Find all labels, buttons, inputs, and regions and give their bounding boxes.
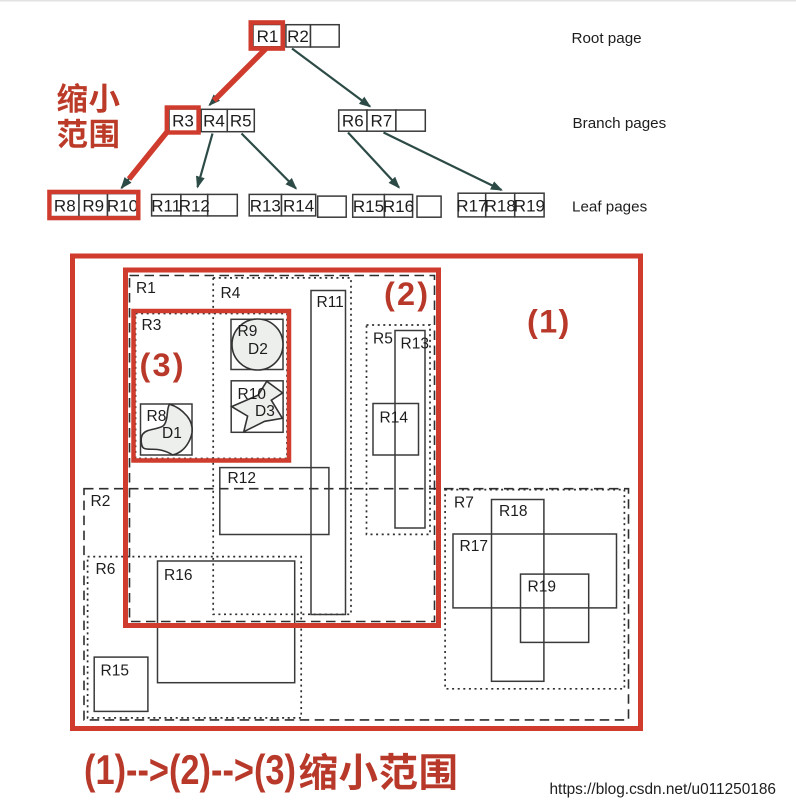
- svg-text:R1: R1: [136, 280, 156, 297]
- svg-text:R4: R4: [221, 285, 241, 302]
- svg-text:R17: R17: [456, 197, 487, 216]
- svg-text:R3: R3: [142, 317, 162, 334]
- svg-text:(3): (3): [140, 347, 186, 383]
- svg-text:D3: D3: [255, 403, 275, 420]
- svg-text:R14: R14: [380, 410, 409, 427]
- svg-text:R12: R12: [228, 470, 256, 487]
- svg-text:D1: D1: [162, 425, 182, 442]
- svg-text:R8: R8: [147, 408, 167, 425]
- svg-text:R18: R18: [499, 503, 527, 520]
- svg-text:R4: R4: [203, 112, 225, 131]
- svg-text:R6: R6: [96, 561, 116, 578]
- svg-text:R19: R19: [528, 579, 556, 596]
- svg-text:R14: R14: [283, 197, 314, 216]
- svg-text:R15: R15: [353, 197, 384, 216]
- svg-text:R9: R9: [82, 197, 104, 216]
- svg-text:R7: R7: [454, 495, 474, 512]
- svg-text:(1): (1): [527, 304, 571, 340]
- svg-text:R7: R7: [371, 112, 393, 131]
- svg-text:R19: R19: [514, 197, 545, 216]
- svg-text:R15: R15: [101, 663, 129, 680]
- svg-text:R6: R6: [342, 112, 364, 131]
- svg-text:Root page: Root page: [572, 30, 642, 47]
- svg-text:R18: R18: [485, 197, 516, 216]
- svg-text:D2: D2: [248, 341, 268, 358]
- svg-text:R5: R5: [230, 112, 252, 131]
- svg-text:R17: R17: [460, 538, 488, 555]
- svg-text:R8: R8: [54, 197, 76, 216]
- svg-text:R1: R1: [257, 27, 279, 46]
- svg-text:R2: R2: [287, 27, 309, 46]
- svg-text:R11: R11: [151, 197, 181, 216]
- svg-text:R11: R11: [317, 294, 344, 311]
- svg-text:R9: R9: [238, 323, 258, 340]
- svg-text:(1)-->(2)-->(3): (1)-->(2)-->(3): [84, 746, 296, 793]
- svg-text:R5: R5: [373, 331, 393, 348]
- svg-text:R16: R16: [164, 567, 192, 584]
- svg-text:R12: R12: [179, 197, 210, 216]
- svg-text:Branch pages: Branch pages: [573, 115, 667, 132]
- svg-text:R10: R10: [238, 386, 267, 403]
- svg-text:R10: R10: [107, 197, 138, 216]
- svg-text:R13: R13: [250, 197, 281, 216]
- svg-text:R3: R3: [172, 112, 194, 131]
- svg-text:https://blog.csdn.net/u0112501: https://blog.csdn.net/u011250186: [550, 781, 776, 798]
- svg-text:Leaf pages: Leaf pages: [572, 199, 648, 216]
- svg-text:R2: R2: [91, 493, 111, 510]
- svg-text:(2): (2): [384, 276, 430, 312]
- svg-text:R13: R13: [401, 336, 429, 353]
- svg-text:R16: R16: [383, 197, 414, 216]
